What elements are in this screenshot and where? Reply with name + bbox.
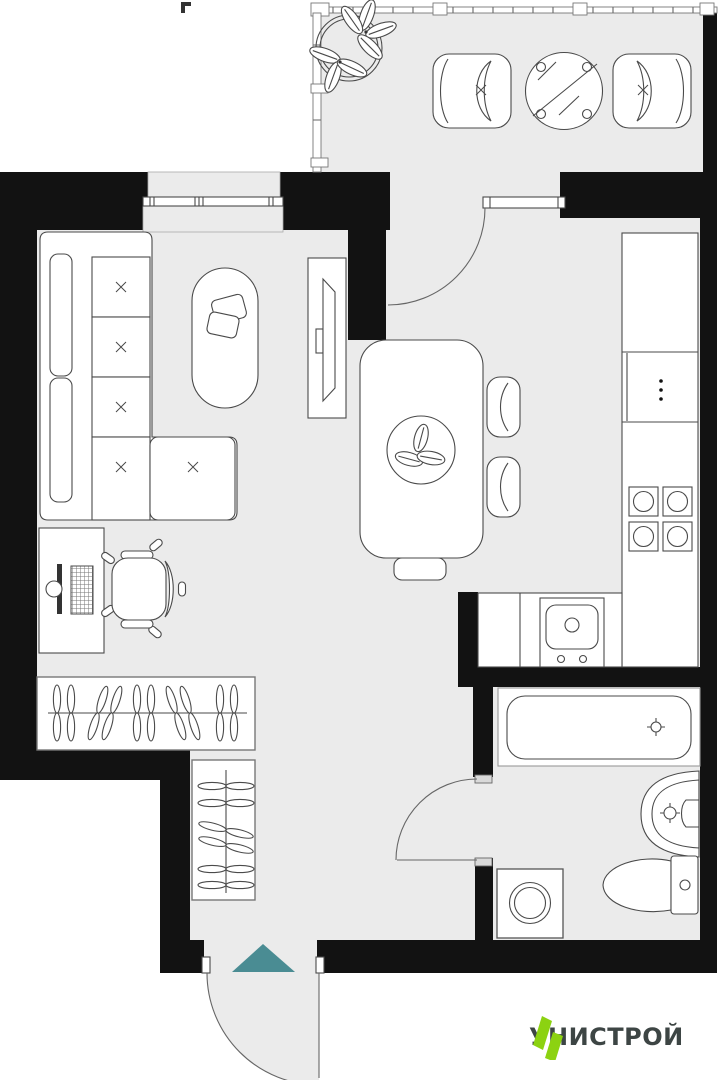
tv-stand-icon (308, 258, 346, 418)
floor-plan-canvas: УНИСТРОЙ (0, 0, 725, 1080)
glazing-post (573, 3, 587, 15)
round-glass-table-icon (526, 53, 603, 130)
unistroy-logo-icon (529, 1014, 565, 1060)
armchair-icon (613, 54, 691, 128)
bathtub-icon (498, 688, 700, 766)
desk-icon (39, 528, 104, 653)
stool-icon (394, 558, 446, 580)
chair-icon (487, 377, 520, 437)
wardrobe-hangers-icon (37, 677, 255, 750)
kitchen-sink-icon (540, 598, 604, 667)
rail-end-bracket (181, 2, 191, 13)
coffee-table-with-books-icon (192, 268, 258, 408)
glazing-post (433, 3, 447, 15)
chair-icon (487, 457, 520, 517)
wardrobe-hangers-icon (192, 760, 255, 900)
armchair-icon (433, 54, 511, 128)
glazing-post (700, 3, 714, 15)
entry-landing (207, 973, 319, 1080)
washing-machine-icon (497, 869, 563, 938)
brand-logo: УНИСТРОЙ (529, 1014, 684, 1060)
living-room-window (143, 172, 283, 232)
floor-plan-drawing (0, 0, 725, 1080)
keyboard-icon (71, 566, 93, 614)
bathroom-threshold (476, 775, 494, 860)
